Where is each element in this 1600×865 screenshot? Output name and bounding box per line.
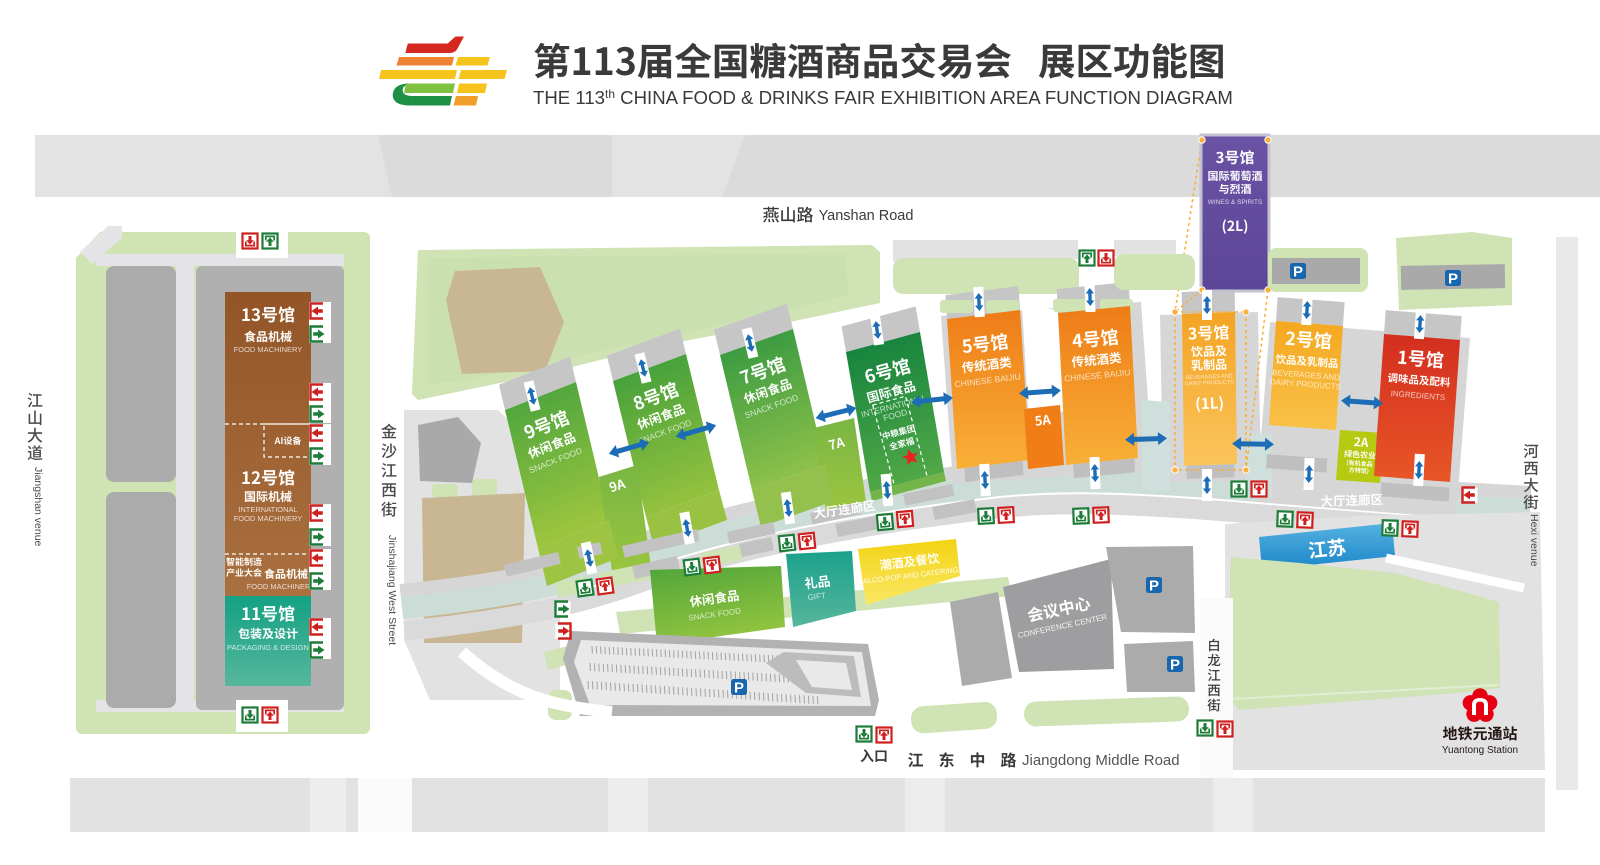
svg-text:FOOD MACHINERY: FOOD MACHINERY	[234, 514, 303, 523]
svg-text:INTERNATIONAL: INTERNATIONAL	[238, 505, 297, 514]
svg-text:Yanshan Road: Yanshan Road	[819, 208, 914, 224]
svg-text:FOOD MACHINERY: FOOD MACHINERY	[247, 582, 316, 591]
svg-text:WINES & SPIRITS: WINES & SPIRITS	[1208, 199, 1263, 206]
svg-text:Jiangshan venue: Jiangshan venue	[32, 467, 44, 547]
svg-text:PACKAGING & DESIGN: PACKAGING & DESIGN	[227, 643, 309, 652]
svg-text:FOOD MACHINERY: FOOD MACHINERY	[234, 345, 303, 354]
svg-text:Jinshajiang West Street: Jinshajiang West Street	[386, 535, 398, 645]
svg-text:Yuantong Station: Yuantong Station	[1442, 745, 1518, 756]
svg-text:Hexi venue: Hexi venue	[1528, 514, 1540, 567]
svg-text:Jiangdong Middle Road: Jiangdong Middle Road	[1022, 752, 1180, 769]
svg-text:THE 113th CHINA FOOD & DRINKS: THE 113th CHINA FOOD & DRINKS FAIR EXHIB…	[533, 87, 1233, 108]
